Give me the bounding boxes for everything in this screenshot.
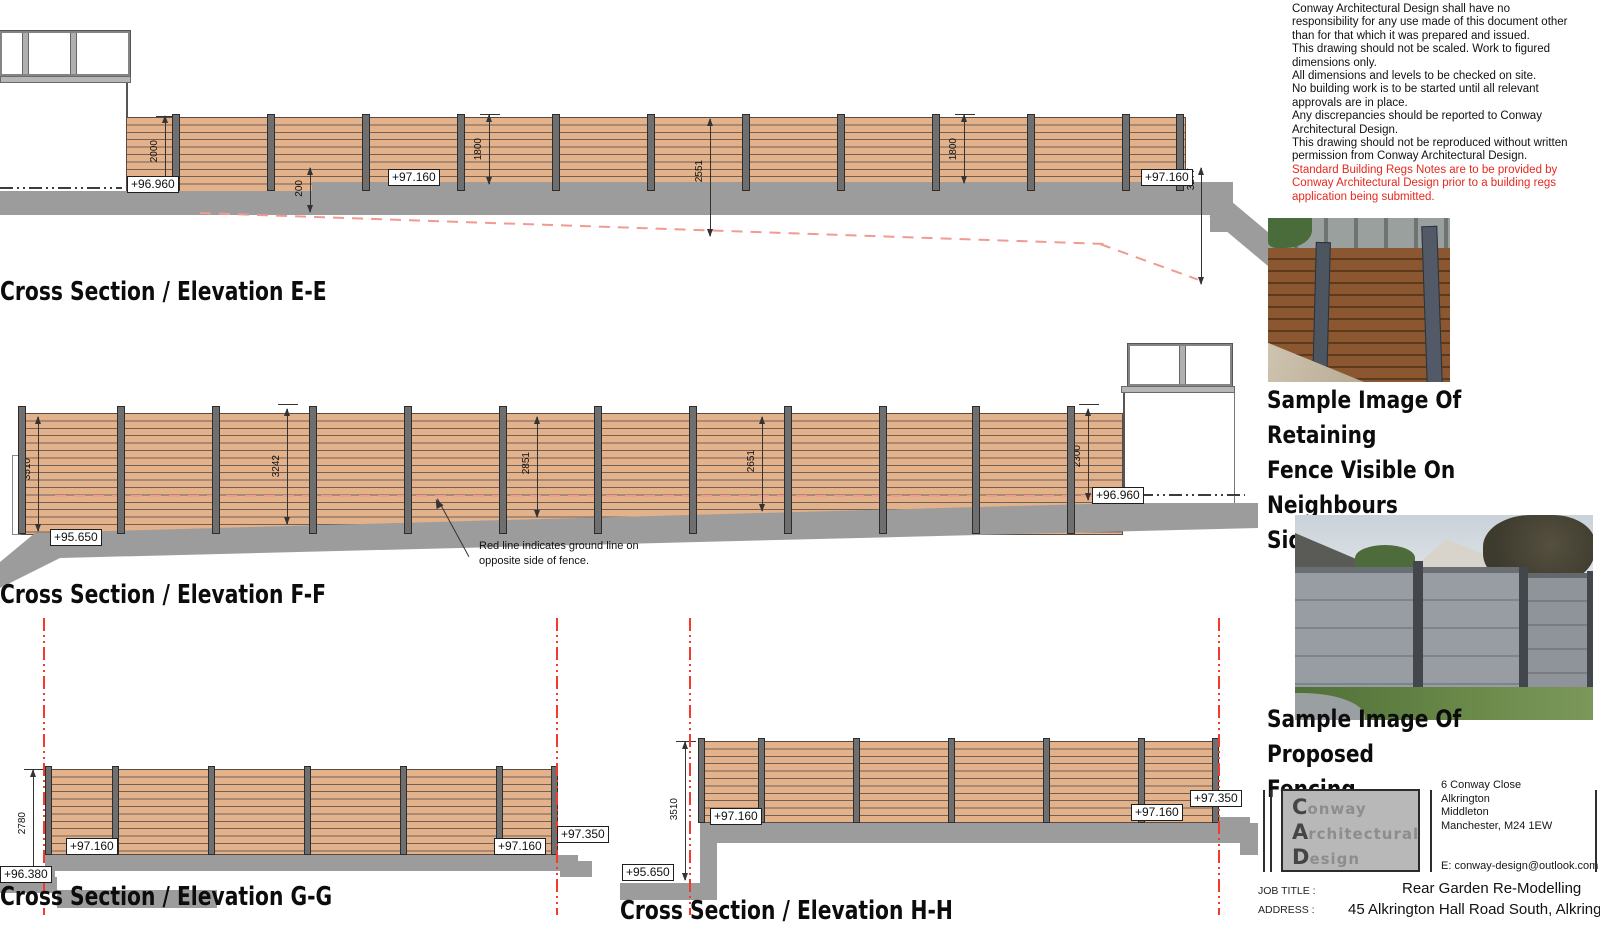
- level-box: +97.160: [1141, 169, 1193, 186]
- retaining-fence-photo: [1268, 218, 1450, 382]
- job-title-label: JOB TITLE :: [1258, 885, 1316, 897]
- section-title-ee: Cross Section / Elevation E-E: [0, 277, 327, 307]
- level-box: +96.960: [127, 176, 179, 193]
- level-box: +97.160: [494, 838, 546, 855]
- dim-label: 3510: [669, 798, 680, 820]
- section-title-ff: Cross Section / Elevation F-F: [0, 580, 326, 610]
- level-box: +97.160: [710, 808, 762, 825]
- level-box: +95.650: [50, 529, 102, 546]
- level-box: +97.160: [388, 169, 440, 186]
- fence-post: [948, 738, 955, 823]
- level-box: +95.650: [622, 864, 674, 881]
- fence-post: [1043, 738, 1050, 823]
- level-box: +97.350: [1190, 790, 1242, 807]
- ground-hh: [700, 823, 1245, 843]
- fence-post: [853, 738, 860, 823]
- red-reference-line-right: [556, 618, 558, 915]
- company-logo: Conway Architectural Design: [1281, 789, 1420, 872]
- level-box: +97.350: [557, 826, 609, 843]
- logo-line: Design: [1292, 845, 1418, 870]
- general-notes: Conway Architectural Design shall have n…: [1292, 3, 1588, 164]
- office-address: 6 Conway Close Alkrington Middleton Manc…: [1441, 779, 1552, 833]
- photo-fence-panels-far: [1523, 573, 1593, 690]
- fence-post: [698, 738, 705, 823]
- building-regs-note: Standard Building Regs Notes are to be p…: [1292, 164, 1588, 204]
- photo-fence-post: [1413, 561, 1423, 695]
- photo-fence-post: [1587, 571, 1593, 687]
- address-label: ADDRESS :: [1258, 904, 1315, 916]
- level-box: +97.160: [66, 838, 118, 855]
- proposed-fencing-photo: [1295, 515, 1593, 720]
- ground-hh-right-drop: [1240, 823, 1258, 855]
- job-title-value: Rear Garden Re-Modelling: [1402, 880, 1581, 897]
- logo-line: Architectural: [1292, 820, 1418, 845]
- dim-line-3510: [685, 742, 686, 880]
- titleblock-border: [1263, 790, 1265, 872]
- titleblock-divider: [1430, 790, 1432, 872]
- ground-hh-drop: [700, 823, 717, 883]
- level-box: +97.160: [1131, 804, 1183, 821]
- photo-fence-panels: [1295, 567, 1525, 698]
- level-box: +96.960: [1092, 487, 1144, 504]
- titleblock-border: [1270, 790, 1272, 872]
- level-box: +96.380: [0, 866, 52, 883]
- photo-fence-post: [1519, 567, 1528, 689]
- office-email: E: conway-design@outlook.com: [1441, 860, 1598, 874]
- section-title-gg: Cross Section / Elevation G-G: [0, 882, 332, 912]
- section-title-hh: Cross Section / Elevation H-H: [620, 896, 953, 926]
- address-value: 45 Alkrington Hall Road South, Alkringto…: [1348, 901, 1600, 918]
- red-reference-line-left: [689, 618, 691, 915]
- logo-line: Conway: [1292, 795, 1418, 820]
- titleblock-border-right: [1595, 790, 1597, 872]
- red-reference-line-right: [1218, 618, 1220, 915]
